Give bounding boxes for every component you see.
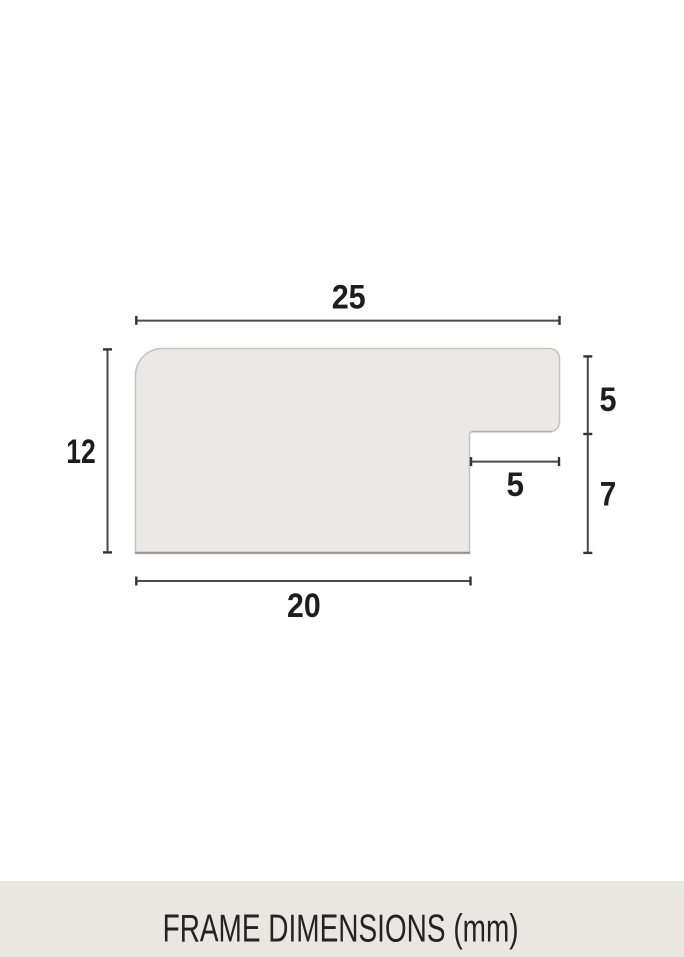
svg-text:5: 5 <box>506 466 524 504</box>
svg-text:5: 5 <box>600 381 617 419</box>
svg-text:FRAME DIMENSIONS (mm): FRAME DIMENSIONS (mm) <box>163 908 519 951</box>
svg-text:20: 20 <box>287 587 321 625</box>
svg-text:12: 12 <box>66 433 96 471</box>
svg-text:25: 25 <box>332 279 366 317</box>
svg-text:7: 7 <box>600 476 617 514</box>
